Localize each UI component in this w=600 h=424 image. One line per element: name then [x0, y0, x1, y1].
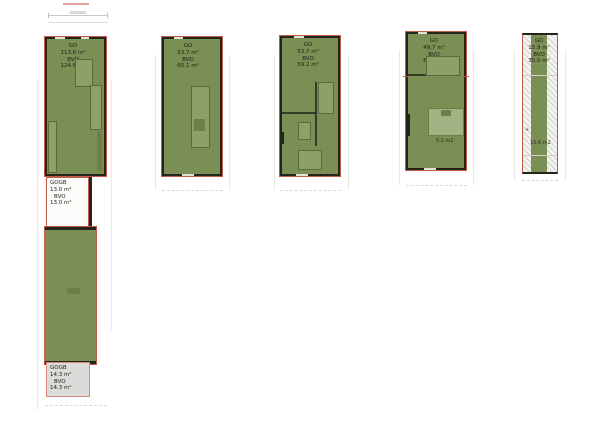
garden-object: [67, 288, 80, 294]
floorplan-unit-4: GO 49.7 m² BVO 63.3 m² 5.2 m2: [406, 32, 466, 170]
interior-wall: [315, 82, 317, 146]
guide-dash-line: [45, 405, 107, 406]
dimension-tick: [48, 13, 49, 18]
stair-block: [318, 82, 334, 114]
guide-dash-line: [280, 190, 341, 191]
go-title: GO: [47, 43, 99, 50]
area-label-unit-5: GO 15.9 m² BVO 35.0 m²: [523, 38, 555, 65]
floorplan-unit-1-garden: [45, 227, 96, 364]
terrace-marker: [441, 110, 451, 116]
gogb-title: GOGB: [50, 180, 88, 187]
floorplan-sheet: GO 113.6 m² BVO 124.8 m² GOGB 13.0 m² BV…: [0, 0, 600, 424]
go-area: 113.6 m²: [47, 50, 99, 57]
guide-line: [111, 80, 112, 330]
go-area: 15.9 m²: [523, 45, 555, 52]
interior-wall: [282, 112, 316, 114]
bvo-area: 60.1 m²: [166, 63, 210, 70]
window-gap: [418, 32, 427, 34]
guide-line: [473, 50, 474, 185]
dimension-text: [70, 11, 86, 14]
guide-dash-line: [162, 190, 223, 191]
corner-mark: +: [525, 127, 529, 133]
guide-dash-line: [406, 185, 467, 186]
bvo-area: 35.0 m²: [523, 58, 555, 65]
guide-line: [399, 50, 400, 185]
go-area: 53.7 m²: [286, 49, 330, 56]
floorplan-unit-2: GO 53.7 m² BVO 60.1 m²: [162, 37, 222, 176]
stair-landing: [194, 119, 205, 131]
window-gap: [296, 174, 308, 176]
counter-strip: [97, 131, 102, 171]
gogb-area: 14.3 m²: [50, 372, 89, 379]
door-jamb: [281, 132, 284, 144]
go-area: 49.7 m²: [412, 45, 456, 52]
go-title: GO: [523, 38, 555, 45]
guide-line: [229, 55, 230, 190]
door-jamb: [407, 114, 410, 136]
guide-line: [565, 50, 566, 180]
roof-terrace: [428, 108, 464, 136]
bathroom-fixture: [298, 122, 311, 140]
cabinet-strip: [48, 121, 57, 173]
dimension-line: [48, 15, 108, 16]
go-title: GO: [166, 43, 210, 50]
go-title: GO: [412, 38, 456, 45]
dimension-line: [48, 22, 108, 23]
gogb-annex-top: GOGB 13.0 m² BVO 13.0 m²: [46, 177, 89, 227]
area-label-unit-3: GO 53.7 m² BVO 59.2 m²: [286, 42, 330, 69]
bed: [298, 150, 322, 170]
survey-tick: [403, 76, 409, 77]
guide-line: [348, 55, 349, 190]
kitchen-counter: [90, 85, 102, 130]
floorplan-unit-5: GO 15.9 m² BVO 35.0 m² + 15.6 m2: [522, 33, 558, 174]
go-title: GO: [286, 42, 330, 49]
window-gap: [182, 174, 194, 176]
survey-tick: [463, 76, 469, 77]
window-gap: [294, 36, 304, 38]
floorplan-unit-3: GO 53.7 m² BVO 59.2 m²: [280, 36, 340, 176]
bathroom-block: [426, 56, 460, 76]
gogb-title: GOGB: [50, 365, 89, 372]
dimension-tick: [107, 13, 108, 18]
passage-area-note: 15.6 m2: [530, 140, 551, 146]
guide-line: [274, 55, 275, 190]
stair-block: [75, 59, 93, 87]
floorplan-unit-1-main: GO 113.6 m² BVO 124.8 m²: [45, 37, 106, 176]
gogb-bvo-area: 13.0 m²: [50, 200, 88, 207]
window-gap: [81, 37, 89, 39]
guide-line: [155, 55, 156, 190]
stair-block: [191, 86, 210, 148]
window-gap: [424, 168, 436, 170]
gogb-shed-bottom: GOGB 14.3 m² BVO 14.3 m²: [46, 362, 90, 397]
gogb-area: 13.0 m²: [50, 187, 88, 194]
area-label-unit-2: GO 53.7 m² BVO 60.1 m²: [166, 43, 210, 70]
guide-dash-line: [522, 180, 558, 181]
section-line: [523, 75, 557, 76]
dimension-text: [63, 3, 89, 5]
guide-line: [37, 80, 38, 410]
go-area: 53.7 m²: [166, 50, 210, 57]
section-line: [523, 155, 557, 156]
terrace-area-note: 5.2 m2: [436, 138, 454, 144]
bvo-area: 59.2 m²: [286, 62, 330, 69]
side-wall: [89, 177, 92, 228]
window-gap: [55, 37, 65, 39]
guide-line: [514, 50, 515, 180]
window-gap: [174, 37, 183, 39]
gogb-bvo-area: 14.3 m²: [50, 385, 89, 392]
